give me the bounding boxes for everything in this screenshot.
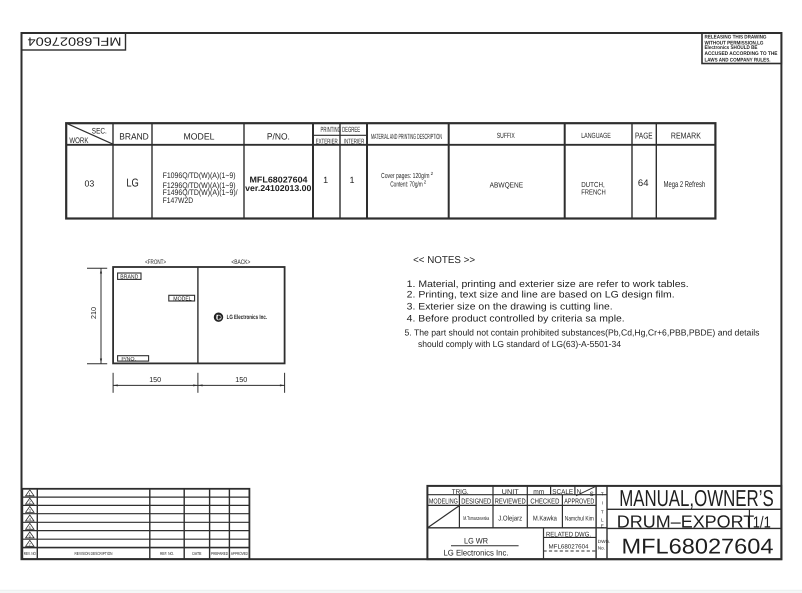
svg-text:L: L bbox=[601, 518, 604, 523]
svg-text:SEC.: SEC. bbox=[92, 126, 107, 135]
svg-text:03: 03 bbox=[85, 179, 95, 189]
svg-text:MODEL: MODEL bbox=[173, 295, 192, 302]
svg-text:BRAND: BRAND bbox=[119, 132, 149, 142]
svg-text:64: 64 bbox=[638, 178, 649, 189]
svg-text:LG Electronics Inc.: LG Electronics Inc. bbox=[227, 314, 268, 321]
svg-text:LG: LG bbox=[126, 178, 139, 190]
svg-text:MODEL: MODEL bbox=[184, 132, 215, 142]
svg-text:EXTERIER: EXTERIER bbox=[316, 138, 338, 145]
svg-text:T: T bbox=[601, 491, 604, 496]
svg-text:MFL68027604: MFL68027604 bbox=[549, 544, 590, 551]
svg-text:should comply with LG standard: should comply with LG standard of LG(63)… bbox=[418, 339, 621, 349]
svg-text:No.: No. bbox=[598, 546, 605, 551]
svg-text:SCALE: SCALE bbox=[552, 489, 573, 496]
svg-text:FRENCH: FRENCH bbox=[581, 187, 606, 196]
svg-text:PAGE: PAGE bbox=[635, 130, 653, 140]
svg-text:210: 210 bbox=[89, 307, 98, 319]
svg-text:N: N bbox=[577, 489, 581, 496]
svg-text:<FRONT>: <FRONT> bbox=[145, 259, 166, 266]
svg-text:F1096Q/TD(W)(A)(1~9): F1096Q/TD(W)(A)(1~9) bbox=[163, 171, 236, 180]
svg-text:<< NOTES >>: << NOTES >> bbox=[413, 255, 475, 266]
svg-text:UNIT: UNIT bbox=[502, 489, 520, 496]
svg-text:CHECKED: CHECKED bbox=[530, 497, 559, 506]
svg-text:MODELING: MODELING bbox=[429, 497, 458, 506]
svg-text:M.Kawka: M.Kawka bbox=[533, 515, 557, 523]
svg-text:DRUM–EXPORT: DRUM–EXPORT bbox=[617, 511, 755, 531]
svg-text:1: 1 bbox=[323, 175, 328, 185]
svg-text:Namchul Kim: Namchul Kim bbox=[565, 516, 594, 523]
svg-text:2. Printing, text size and lin: 2. Printing, text size and line are base… bbox=[407, 290, 675, 301]
svg-text:150: 150 bbox=[235, 375, 247, 384]
svg-text:I: I bbox=[602, 500, 603, 505]
svg-text:LG WR: LG WR bbox=[464, 536, 488, 545]
svg-text:REV. NO: REV. NO bbox=[24, 551, 36, 556]
svg-text:MFL68027604: MFL68027604 bbox=[622, 535, 774, 559]
svg-text:ACCUSED ACCORDING TO THE: ACCUSED ACCORDING TO THE bbox=[705, 51, 778, 57]
svg-text:REF. NO.: REF. NO. bbox=[160, 551, 174, 556]
svg-text:PRINTING DEGREE: PRINTING DEGREE bbox=[321, 125, 361, 134]
svg-text:REVIEWED: REVIEWED bbox=[495, 497, 526, 506]
svg-text:REMARK: REMARK bbox=[671, 130, 701, 140]
svg-text:J.Olejarz: J.Olejarz bbox=[498, 515, 522, 523]
svg-text:Content: 70g/m: Content: 70g/m bbox=[390, 179, 423, 188]
svg-text:M.Tomaszewska: M.Tomaszewska bbox=[463, 516, 489, 522]
svg-text:150: 150 bbox=[149, 375, 161, 384]
svg-text:E: E bbox=[601, 523, 604, 528]
svg-text:P/NO.: P/NO. bbox=[267, 132, 290, 142]
svg-text:5. The part should not contain: 5. The part should not contain prohibite… bbox=[405, 328, 761, 338]
svg-text:ABWQENE: ABWQENE bbox=[490, 181, 524, 190]
svg-text:MFL68027604: MFL68027604 bbox=[27, 34, 121, 48]
svg-text:SUFFIX: SUFFIX bbox=[497, 131, 515, 140]
svg-text:REVISION DESCRIPTION: REVISION DESCRIPTION bbox=[75, 551, 113, 556]
svg-text:1/1: 1/1 bbox=[753, 515, 771, 532]
svg-text:RELATED DWG.: RELATED DWG. bbox=[546, 531, 591, 538]
svg-text:1: 1 bbox=[349, 175, 354, 185]
svg-text:F147W2D: F147W2D bbox=[163, 196, 194, 205]
svg-text:LAWS AND COMPANY RULES.: LAWS AND COMPANY RULES. bbox=[705, 58, 771, 64]
svg-text:LANGUAGE: LANGUAGE bbox=[581, 131, 611, 140]
svg-text:ver.24102013.00: ver.24102013.00 bbox=[245, 183, 312, 193]
svg-text:PREPARED: PREPARED bbox=[211, 551, 228, 556]
svg-text:DWG.: DWG. bbox=[598, 539, 611, 544]
svg-text:TRIG.: TRIG. bbox=[452, 489, 469, 496]
svg-text:DATE: DATE bbox=[192, 551, 201, 556]
svg-text:LG Electronics Inc.: LG Electronics Inc. bbox=[444, 549, 509, 558]
svg-text:mm: mm bbox=[533, 489, 544, 496]
svg-text:P/NO.: P/NO. bbox=[121, 356, 136, 362]
svg-text:T: T bbox=[601, 509, 604, 514]
svg-text:3. Exterier size on the drawin: 3. Exterier size on the drawing is cutti… bbox=[407, 302, 613, 313]
svg-text:MANUAL,OWNER’S: MANUAL,OWNER’S bbox=[619, 485, 774, 511]
svg-text:Mega 2 Refresh: Mega 2 Refresh bbox=[664, 179, 706, 189]
svg-text:APPROVED: APPROVED bbox=[564, 497, 594, 506]
svg-text:APPROVED: APPROVED bbox=[231, 551, 248, 556]
svg-text:1. Material, printing and exte: 1. Material, printing and exterier size … bbox=[407, 279, 689, 290]
svg-text:BRAND: BRAND bbox=[120, 274, 138, 280]
svg-text:<BACK>: <BACK> bbox=[231, 259, 250, 266]
svg-text:INTERIER: INTERIER bbox=[344, 138, 365, 145]
svg-text:MATERIAL AND PRINTING DESCRIPT: MATERIAL AND PRINTING DESCRIPTION bbox=[371, 132, 442, 141]
svg-text:WORK: WORK bbox=[69, 136, 89, 145]
svg-text:DESIGNED: DESIGNED bbox=[461, 497, 491, 506]
svg-text:4. Before product controlled b: 4. Before product controlled by criteria… bbox=[407, 313, 625, 324]
